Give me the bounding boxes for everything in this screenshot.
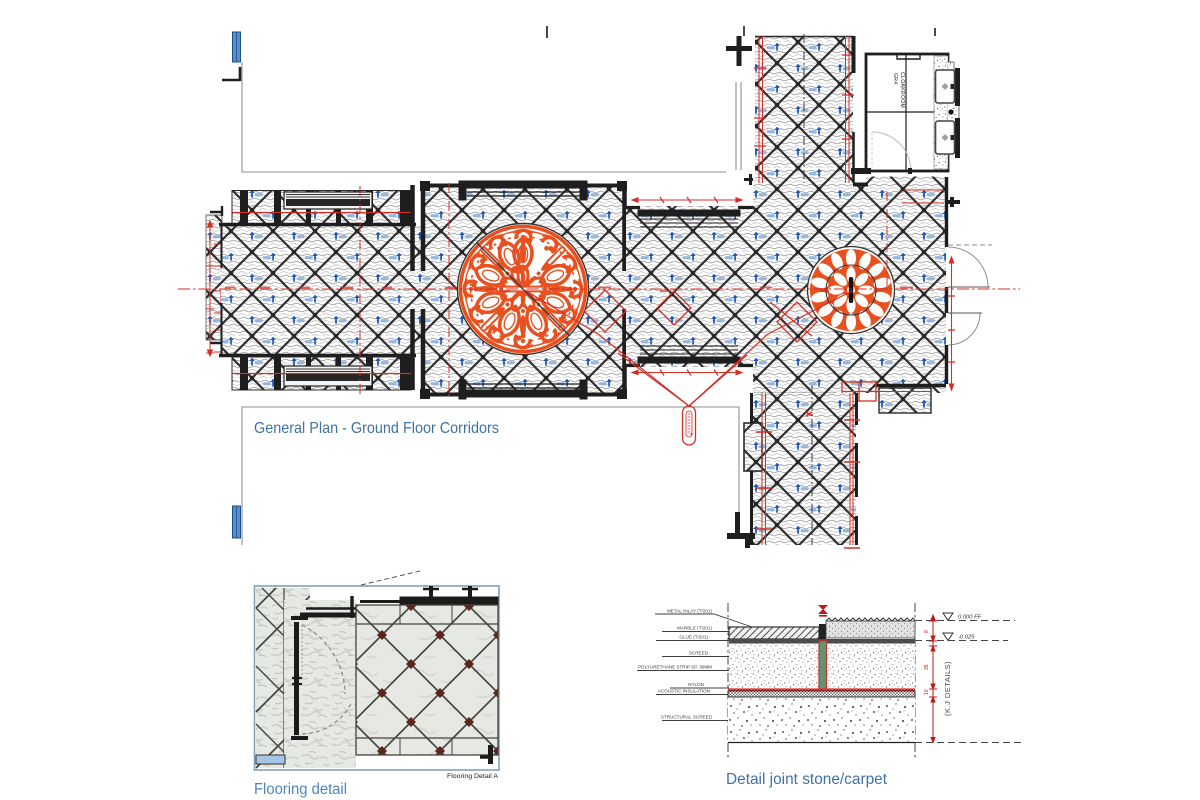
svg-text:POLYURETHANE STRIP SP. 30MM: POLYURETHANE STRIP SP. 30MM: [638, 665, 712, 670]
svg-text:GLUE (T/201): GLUE (T/201): [679, 635, 708, 640]
svg-text:-0.025: -0.025: [958, 635, 975, 641]
svg-text:Detail joint stone/carpet: Detail joint stone/carpet: [726, 771, 888, 788]
svg-text:METAL INLAY (T/201): METAL INLAY (T/201): [667, 609, 712, 614]
svg-text:GR4: GR4: [892, 73, 898, 84]
svg-text:STRUCTURAL SCREED: STRUCTURAL SCREED: [661, 715, 713, 720]
svg-text:CLOAKROOM: CLOAKROOM: [899, 72, 905, 108]
svg-text:Flooring Detail A: Flooring Detail A: [447, 774, 498, 780]
svg-text:MARBLE (T/201): MARBLE (T/201): [677, 626, 712, 631]
svg-text:Flooring detail: Flooring detail: [254, 781, 347, 798]
svg-text:General Plan - Ground Floor Co: General Plan - Ground Floor Corridors: [254, 420, 499, 437]
svg-text:0.000 FF: 0.000 FF: [958, 615, 982, 621]
svg-text:8: 8: [924, 630, 930, 633]
svg-text:10: 10: [924, 689, 930, 695]
svg-text:SCREED: SCREED: [689, 651, 709, 656]
svg-text:NYLON: NYLON: [688, 682, 704, 687]
svg-text:35: 35: [924, 664, 930, 670]
svg-text:ACOUSTIC INSULATION: ACOUSTIC INSULATION: [658, 689, 710, 694]
svg-text:(K.J DETAILS): (K.J DETAILS): [943, 661, 952, 716]
